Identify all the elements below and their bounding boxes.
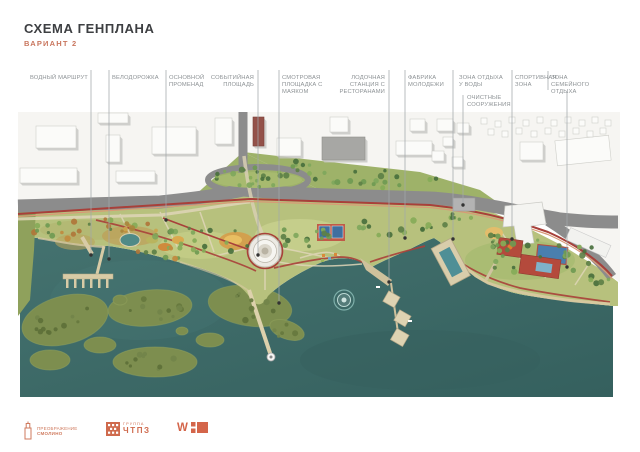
w-blocks-icon <box>191 421 208 435</box>
page-subtitle: ВАРИАНТ 2 <box>24 39 155 48</box>
logo-preobrazhenie-smolino: ПРЕОБРАЖЕНИЕ СМОЛИНО <box>22 421 77 441</box>
water-marker-icon <box>334 290 354 310</box>
map-label-vodny-marshrut: ВОДНЫЙ МАРШРУТ <box>28 75 88 82</box>
masterplan-map <box>0 0 640 452</box>
map-label-zona-semeynogo-otdykha: ЗОНА СЕМЕЙНОГООТДЫХА <box>551 75 607 96</box>
map-label-fabrika-molodezhi: ФАБРИКАМОЛОДЕЖИ <box>408 75 450 89</box>
map-label-sobytiynaya-ploshchad: СОБЫТИЙНАЯПЛОЩАДЬ <box>204 75 254 89</box>
event-plaza <box>249 235 281 267</box>
footer: ПРЕОБРАЖЕНИЕ СМОЛИНО ГРУППА ЧТПЗ W <box>0 418 640 448</box>
logo-gruppa-chtpz: ГРУППА ЧТПЗ <box>106 422 151 436</box>
masterplan-slide: СХЕМА ГЕНПЛАНА ВАРИАНТ 2 ВОДНЫЙ МАРШРУТ … <box>0 0 640 452</box>
page-title: СХЕМА ГЕНПЛАНА <box>24 21 155 36</box>
chtpz-mark-icon <box>106 422 120 436</box>
logo-w: W <box>177 421 208 435</box>
map-label-osnovnoy-promenad: ОСНОВНОЙПРОМЕНАД <box>169 75 209 89</box>
sport-zone-building <box>497 237 523 257</box>
map-label-smotrovaya-ploshchadka: СМОТРОВАЯПЛОЩАДКА СМАЯКОМ <box>282 75 326 96</box>
map-label-lodochnaya-stantsiya: ЛОДОЧНАЯСТАНЦИЯ СРЕСТОРАНАМИ <box>325 75 385 96</box>
map-label-zona-otdykha-u-vody: ЗОНА ОТДЫХАУ ВОДЫ <box>459 75 507 89</box>
tower-icon <box>22 421 34 441</box>
map-label-velodorozhka: ВЕЛОДОРОЖКА <box>112 75 164 82</box>
map-label-ochistnye-sooruzheniya: ОЧИСТНЫЕСООРУЖЕНИЯ <box>467 95 513 109</box>
